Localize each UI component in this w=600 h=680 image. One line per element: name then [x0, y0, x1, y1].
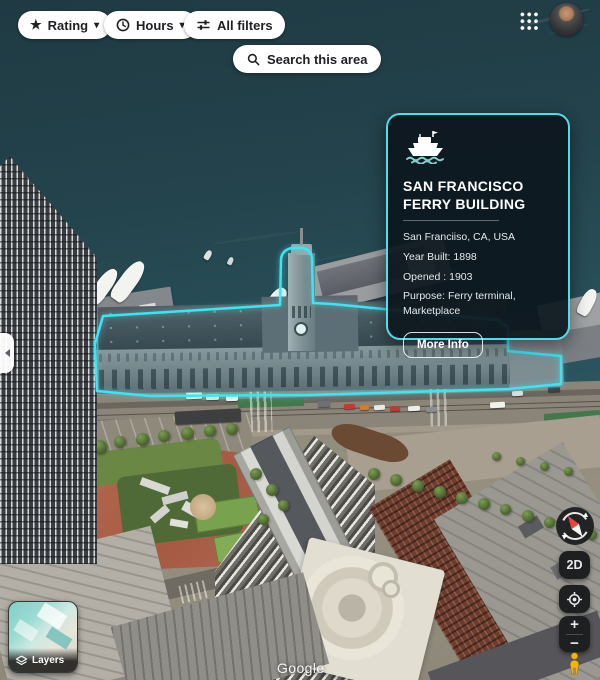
tree [522, 510, 534, 522]
place-year-built: Year Built: 1898 [403, 250, 553, 264]
tree [226, 423, 238, 435]
all-filters-chip-label: All filters [217, 18, 273, 33]
tree [204, 425, 216, 437]
layers-button[interactable]: Layers [8, 601, 78, 673]
search-this-area-label: Search this area [267, 52, 367, 67]
tree [266, 484, 278, 496]
vehicle [390, 406, 400, 412]
search-this-area-button[interactable]: Search this area [233, 45, 381, 73]
rating-filter-chip[interactable]: ★ Rating ▾ [18, 11, 111, 39]
tree [258, 514, 269, 525]
pegman-icon [566, 652, 583, 676]
tree [540, 462, 549, 471]
tree [114, 436, 126, 448]
search-icon [247, 53, 260, 66]
all-filters-chip[interactable]: All filters [184, 11, 285, 39]
thumbnail-building [13, 619, 39, 642]
my-location-icon [566, 591, 583, 608]
vehicle [512, 391, 523, 397]
tree [478, 498, 490, 510]
apps-grid-icon[interactable] [518, 10, 538, 30]
vehicle [490, 402, 505, 409]
tree [368, 468, 380, 480]
layers-label: Layers [32, 655, 64, 666]
tree [544, 517, 555, 528]
pegman-control[interactable] [566, 652, 583, 680]
tree [564, 467, 573, 476]
tower-arches [292, 306, 311, 318]
clock-tower [288, 253, 315, 351]
vehicle [374, 405, 385, 411]
vehicle [344, 404, 355, 410]
tune-icon [196, 18, 211, 32]
collapse-arrow-icon [5, 349, 10, 357]
layers-icon [15, 654, 28, 667]
star-icon: ★ [30, 17, 42, 33]
google-earth-window: Google ★ Rating ▾ Hours ▾ All filters Se… [0, 0, 600, 680]
place-title: SAN FRANCISCO FERRY BUILDING [403, 177, 533, 213]
plaza-circle [190, 494, 216, 520]
tree [492, 452, 501, 461]
tree [500, 504, 511, 515]
tree [158, 430, 170, 442]
tower-clock-face [294, 322, 308, 336]
ferry-ship-icon [403, 128, 553, 169]
2d-mode-button[interactable]: 2D [559, 551, 590, 579]
chevron-down-icon: ▾ [94, 20, 99, 31]
hours-filter-chip[interactable]: Hours ▾ [104, 11, 197, 39]
vehicle [206, 394, 219, 400]
thumbnail-water [46, 627, 73, 650]
tree [412, 480, 424, 492]
vehicle [426, 407, 437, 413]
user-avatar[interactable] [550, 3, 583, 36]
tree [250, 468, 262, 480]
tree [278, 500, 289, 511]
place-address: San Franciiso, CA, USA [403, 230, 553, 244]
vehicle [318, 401, 330, 407]
2d-mode-label: 2D [567, 558, 583, 572]
tree [390, 474, 402, 486]
vehicle [408, 406, 420, 412]
crosswalk [249, 390, 272, 433]
side-panel-collapse-button[interactable] [0, 333, 14, 373]
tower-spire [300, 228, 303, 245]
compass-control[interactable] [555, 506, 595, 546]
tree [136, 433, 149, 446]
zoom-control: + − [559, 616, 590, 652]
card-divider [403, 220, 499, 221]
place-info-card: SAN FRANCISCO FERRY BUILDING San Francii… [386, 113, 570, 340]
tree [516, 457, 525, 466]
more-info-button[interactable]: More Info [403, 332, 483, 358]
zoom-in-button[interactable]: + [570, 618, 579, 632]
vehicle [360, 405, 369, 410]
layers-label-strip: Layers [9, 648, 77, 672]
place-purpose: Purpose: Ferry terminal, Marketplace [403, 289, 553, 317]
google-watermark: Google [277, 660, 325, 676]
tree [456, 492, 468, 504]
tree [181, 427, 194, 440]
tower-cap [291, 244, 312, 255]
zoom-out-button[interactable]: − [570, 637, 579, 650]
rooftop-dome [382, 580, 400, 598]
hours-chip-label: Hours [136, 18, 174, 33]
tree [434, 486, 446, 498]
my-location-button[interactable] [559, 585, 590, 613]
vehicle [226, 395, 238, 401]
clock-icon [116, 18, 130, 32]
compass-icon [555, 506, 595, 546]
place-opened: Opened : 1903 [403, 270, 553, 284]
arcade-windows [99, 364, 507, 390]
vehicle [186, 392, 202, 400]
rating-chip-label: Rating [48, 18, 88, 33]
